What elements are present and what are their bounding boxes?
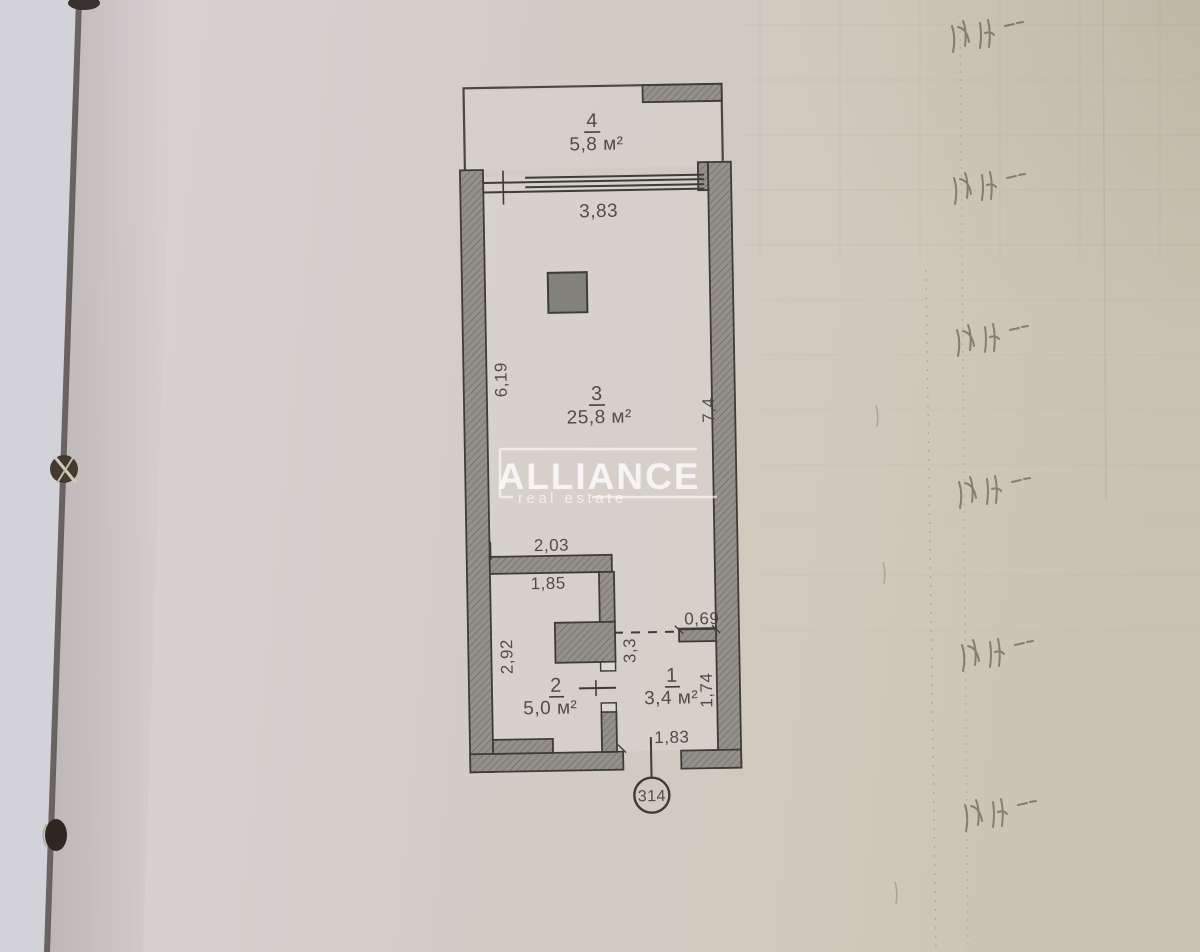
- room3-number: 3: [591, 383, 603, 405]
- duct-block: [555, 622, 616, 663]
- room3-area: 25,8 м²: [567, 406, 633, 428]
- door-jamb-bottom: [601, 703, 616, 712]
- wall-right-pier: [698, 162, 708, 190]
- vent-shaft: [548, 272, 588, 313]
- dim-room3-right: 7,4: [699, 397, 718, 422]
- dim-window: 3,83: [579, 201, 618, 223]
- wall-partition-room3: [490, 555, 612, 574]
- dim-hall-opening: 0,69: [684, 609, 719, 629]
- wall-bottom-right: [681, 750, 741, 769]
- entrance-line: [651, 737, 652, 778]
- room2-area: 5,0 м²: [523, 697, 577, 719]
- scanned-floorplan-photo: 314 4 5,8 м² 3,83 3 25,8 м² 6,19 7,4 2,0…: [0, 0, 1200, 952]
- room1-area: 3,4 м²: [644, 687, 698, 709]
- dim-partition: 2,03: [534, 536, 569, 556]
- room4-area: 5,8 м²: [569, 134, 623, 156]
- room2-number: 2: [550, 675, 562, 697]
- unit-number: 314: [638, 788, 666, 805]
- dim-entry: 1,83: [654, 727, 689, 747]
- dim-room1-right: 1,74: [697, 672, 717, 707]
- wall-room2-step: [493, 739, 553, 754]
- balcony-door-tick: [503, 171, 504, 205]
- door-jamb-top: [601, 662, 616, 671]
- balcony-wall-block: [642, 84, 721, 102]
- wall-central-upper: [599, 572, 615, 622]
- dim-hall-height: 3,3: [620, 638, 639, 663]
- dim-room3-left: 6,19: [491, 362, 511, 397]
- dim-room2-left: 2,92: [497, 639, 517, 674]
- dim-line-069: [679, 629, 716, 630]
- floor-plan: 314 4 5,8 м² 3,83 3 25,8 м² 6,19 7,4 2,0…: [0, 0, 1200, 952]
- dim-partition-inner: 1,85: [530, 574, 565, 594]
- room1-number: 1: [666, 665, 678, 687]
- room-door-line: [579, 688, 616, 689]
- room4-number: 4: [586, 110, 598, 132]
- watermark-tagline: real estate: [518, 490, 627, 507]
- wall-central-lower: [601, 712, 617, 752]
